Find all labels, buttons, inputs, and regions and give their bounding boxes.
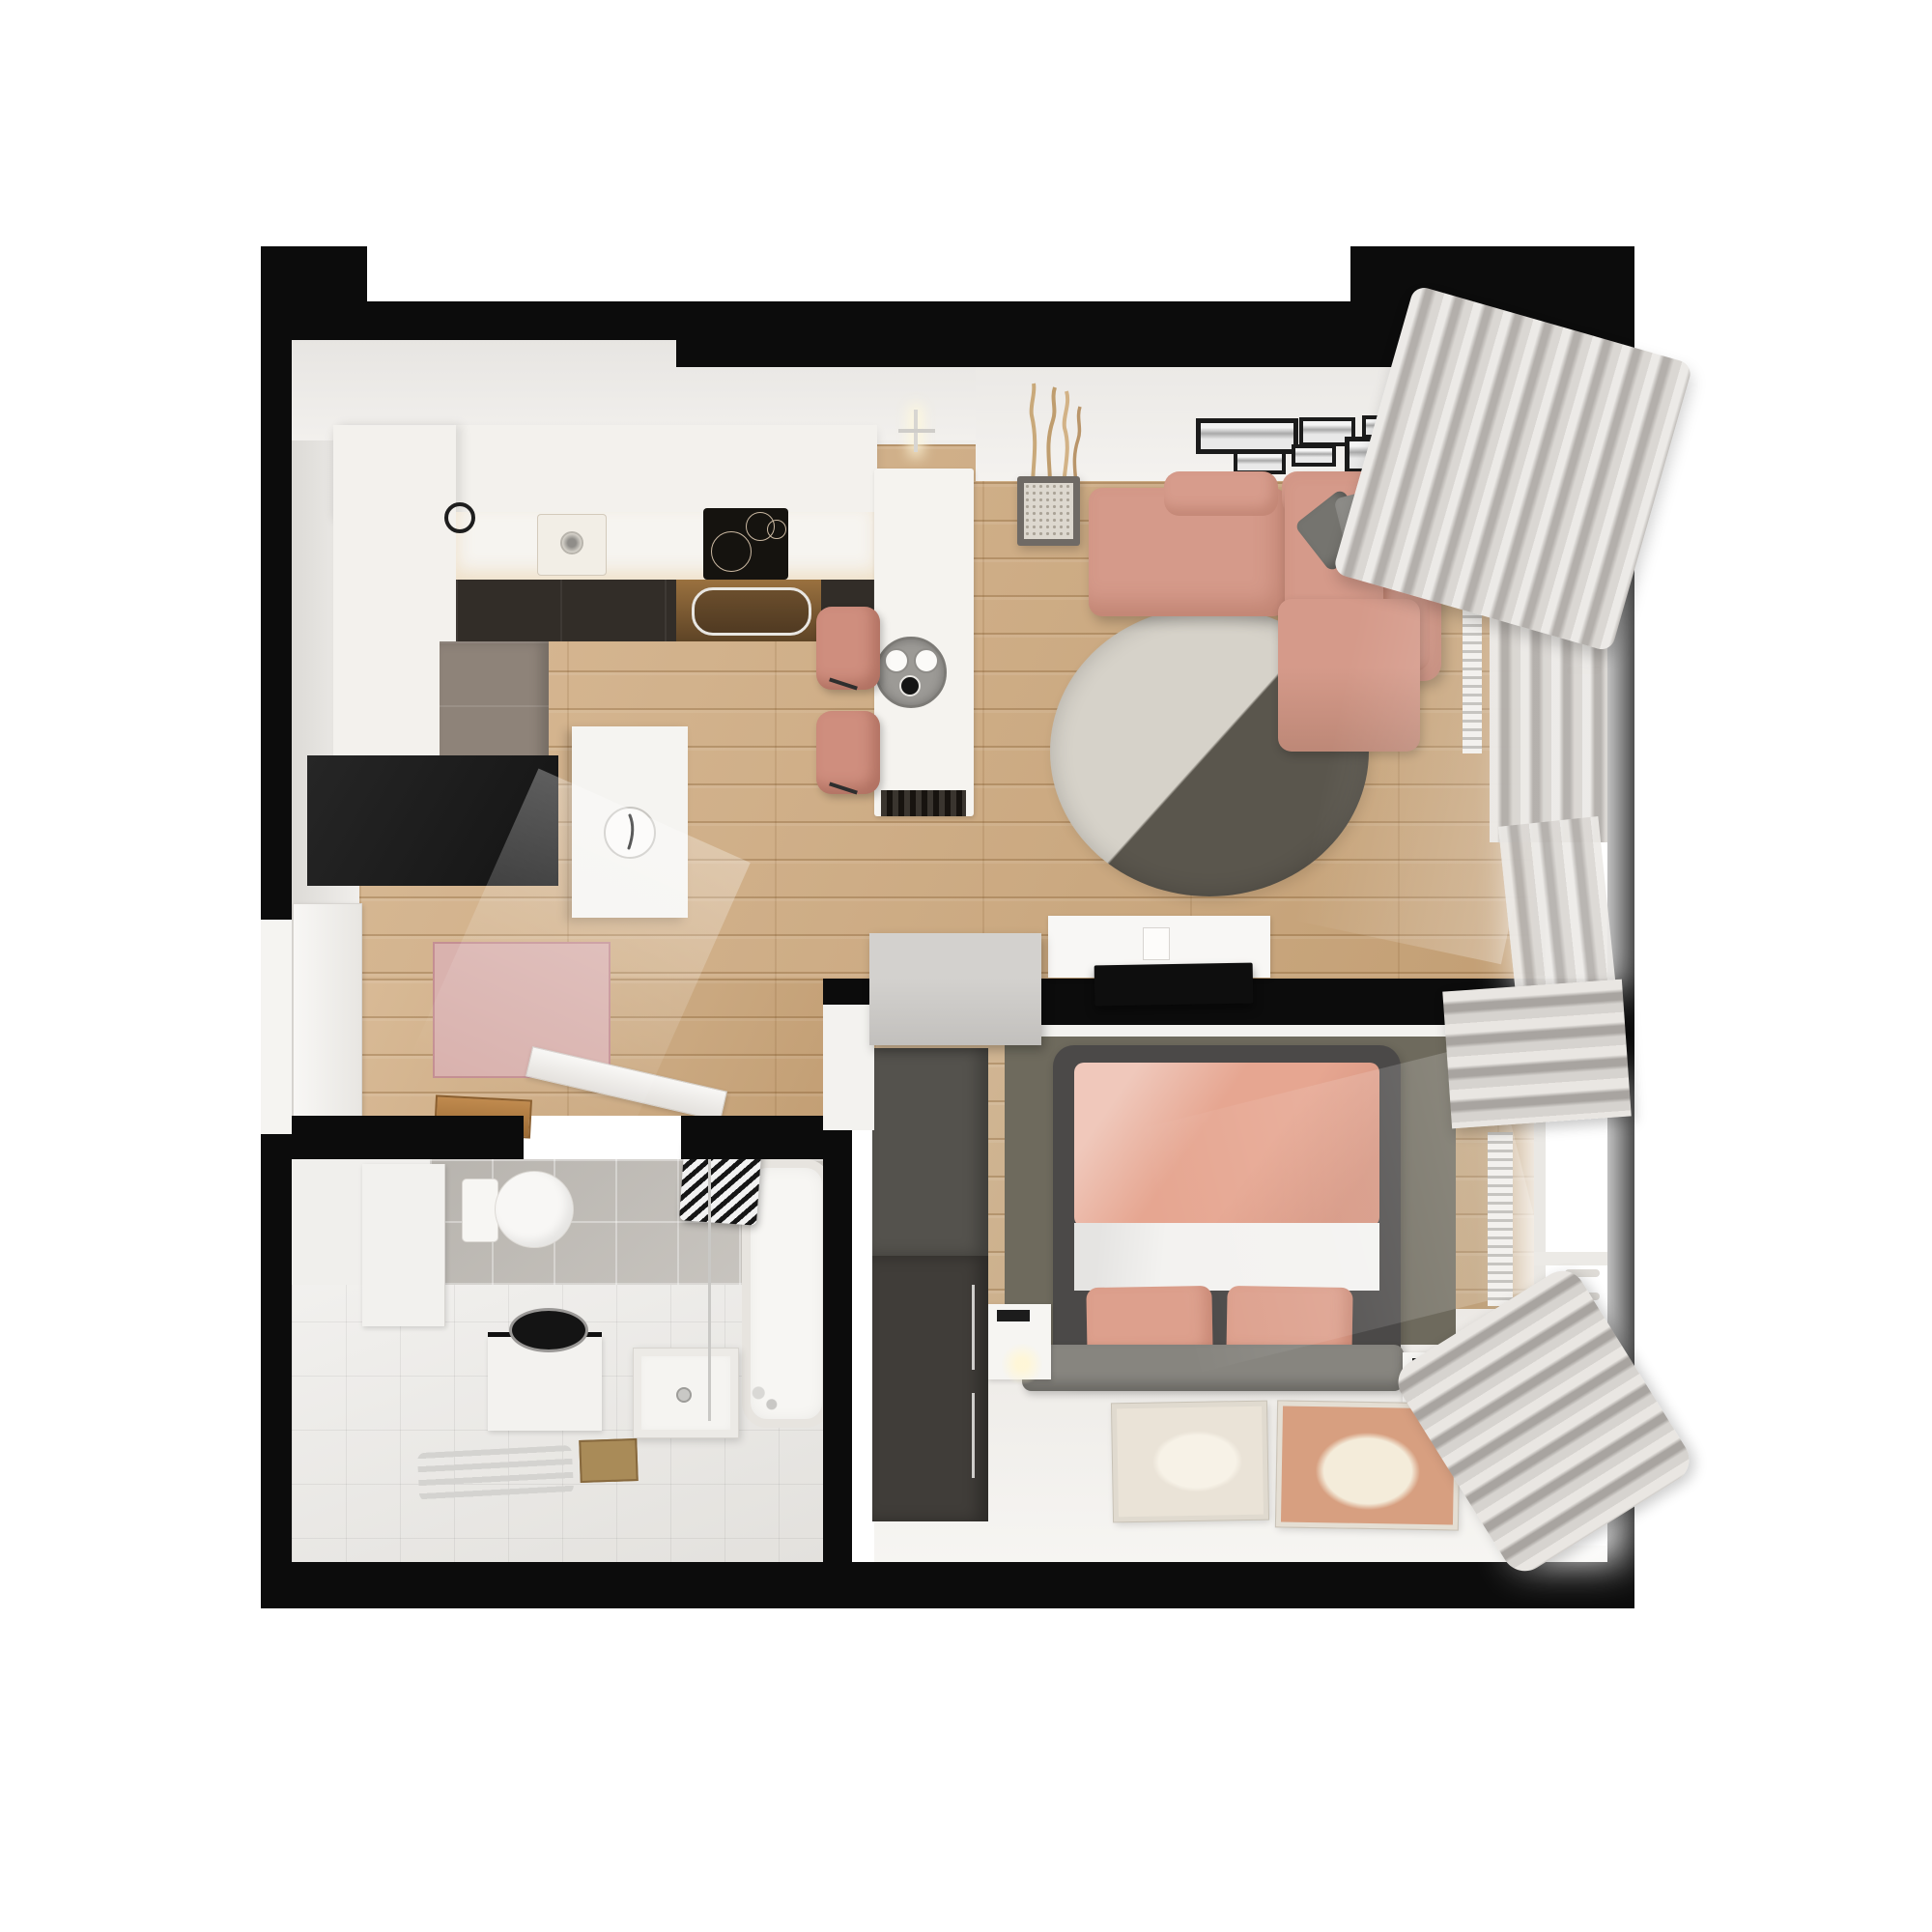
tray-bowl (899, 675, 921, 696)
toilet-bowl (495, 1171, 574, 1248)
living-curtain-bottom-tail (1498, 816, 1616, 1000)
sink-drain (560, 531, 583, 554)
wall-corner-block-left (261, 246, 367, 304)
entry-door-open (293, 903, 362, 1140)
gallery-frame-1 (1196, 418, 1298, 454)
wall-bathroom-hall-right (681, 1116, 823, 1159)
washbasin-faucet (676, 1387, 692, 1403)
apartment-floorplan-render (0, 0, 1932, 1932)
bathtub-faucet (749, 1381, 781, 1414)
bath-left-cabinet (362, 1164, 445, 1326)
serving-tray (875, 637, 947, 708)
wall-desk-gray (869, 933, 1041, 1045)
wall-clock (601, 804, 659, 862)
bed-duvet-pink (1074, 1063, 1379, 1227)
planter-pebbles (1024, 483, 1073, 539)
shower-column (708, 1135, 711, 1421)
cooktop-ring-large (711, 531, 752, 572)
bedroom-wardrobe-bottom (872, 1256, 988, 1521)
bar-stool-2 (816, 711, 880, 794)
tray-cup-left (884, 648, 909, 673)
nightstand-left-item (997, 1310, 1030, 1321)
bedroom-window-mullion (1534, 1252, 1607, 1265)
kitchen-countertop (456, 512, 877, 582)
wall-bathroom-hall-left (292, 1116, 524, 1159)
entry-wardrobe-black (307, 755, 558, 886)
bed-foot-bench (1022, 1345, 1404, 1391)
sofa-chaise (1278, 599, 1420, 752)
gallery-frame-4 (1292, 444, 1336, 467)
bedroom-door-opening (823, 1005, 874, 1130)
wall-top-left (261, 301, 699, 340)
entry-door-opening (261, 920, 292, 1134)
floor-drain-niche (579, 1438, 638, 1483)
living-radiator (1463, 607, 1482, 753)
wardrobe-handle-2 (972, 1393, 975, 1478)
round-black-basin (509, 1308, 588, 1352)
bedroom-roman-shade (1442, 980, 1631, 1129)
bar-stool-1 (816, 607, 880, 690)
tv-flat-black (1094, 963, 1254, 1007)
wardrobe-handle-1 (972, 1285, 975, 1370)
bedroom-radiator (1488, 1132, 1513, 1306)
island-vent-grille (881, 790, 966, 816)
toilet-tank (462, 1179, 498, 1242)
tray-cup-right (914, 648, 939, 673)
cooker-hood (692, 587, 811, 636)
bed-sheet-white (1074, 1223, 1379, 1291)
poster-beige (1112, 1402, 1268, 1522)
wall-bottom (261, 1562, 1634, 1608)
bedroom-wardrobe-top (872, 1048, 988, 1256)
towel-radiator (417, 1445, 574, 1501)
sofa-back-cushion-left (1164, 471, 1278, 516)
cooktop-ring-small (767, 520, 786, 539)
media-box (1143, 927, 1170, 960)
lamp-left (1001, 1343, 1043, 1385)
kitchen-wall-lamp-icon (444, 502, 475, 533)
wall-corner-block-right (1350, 246, 1634, 304)
island-pendant-bar (898, 429, 935, 433)
